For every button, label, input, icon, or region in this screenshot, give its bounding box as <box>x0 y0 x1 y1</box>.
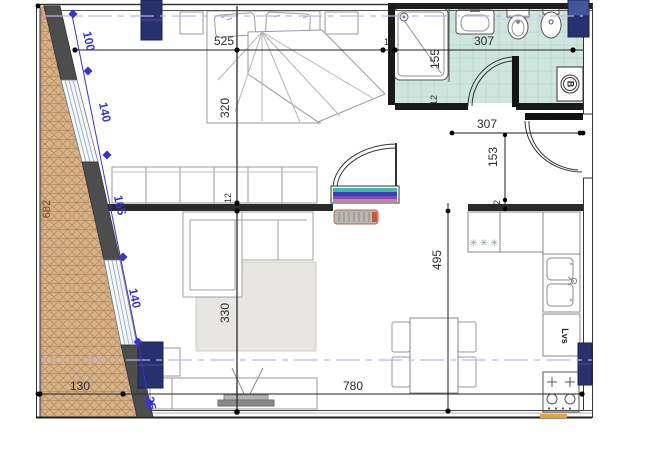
wardrobe <box>112 167 317 203</box>
sofa-chaise <box>183 212 242 297</box>
dim-living-depth: 330 <box>218 303 232 323</box>
chair <box>392 357 410 387</box>
boiler: B <box>557 67 583 101</box>
dining-table <box>410 318 458 393</box>
dim-bottom-main: 780 <box>343 379 363 393</box>
bathroom-top-wall <box>388 3 593 9</box>
dim-top-wall: 12 <box>384 37 394 47</box>
accent-strip <box>540 414 567 418</box>
dim-top-bedroom: 525 <box>214 34 234 48</box>
kitchen-counter-right <box>543 212 580 254</box>
chair <box>458 322 476 352</box>
entry-door-swing <box>525 121 582 172</box>
bedroom-bathroom-wall <box>388 6 395 105</box>
tv-screen <box>224 395 268 400</box>
cooktop <box>543 372 579 412</box>
bedroom-door-swing <box>333 144 396 187</box>
dim-shower-width: 155 <box>428 49 442 69</box>
dim-bedroom-depth: 320 <box>218 98 232 118</box>
radiator-valve <box>372 212 377 222</box>
dim-total-height: 682 <box>41 200 53 218</box>
chair <box>392 322 410 352</box>
dim-bottom-left: 130 <box>70 379 90 393</box>
chair <box>458 357 476 387</box>
dim-facade-100: 100 <box>80 30 98 53</box>
sink-bowl-top <box>547 258 573 280</box>
dim-living-wall: 12 <box>223 193 233 203</box>
boiler-label: B <box>566 81 576 88</box>
column-top-right <box>568 16 589 37</box>
entry-door-leaf <box>525 113 583 120</box>
floor-plan-canvas: B <box>0 0 670 450</box>
dim-hall-wall: 12 <box>492 200 502 210</box>
dim-facade-140a: 140 <box>96 101 114 124</box>
dining-set <box>392 318 476 393</box>
tv-stand <box>218 400 274 406</box>
dim-hall-width: 307 <box>477 117 497 131</box>
sink-bowl-bottom <box>547 284 573 306</box>
washbasin-bowl <box>461 15 489 31</box>
tv-unit <box>140 348 317 409</box>
dim-top-bathroom: 307 <box>474 34 494 48</box>
dim-kitchen-run: 495 <box>430 250 444 270</box>
bedroom-furniture <box>180 11 385 123</box>
bedroom-door-leaf <box>331 186 399 203</box>
dim-shower-wall: 12 <box>429 95 439 105</box>
floor-plan-svg: B <box>0 0 670 450</box>
dishwasher-label: Lvs <box>560 328 570 344</box>
column-top-right-cap <box>568 0 589 16</box>
dim-facade-165: 165 <box>111 194 129 217</box>
radiator <box>334 210 378 224</box>
bathroom-door-leaf <box>512 56 519 107</box>
hob-marks: ✳✳✳ <box>469 238 500 249</box>
dim-hall-depth: 153 <box>486 147 500 167</box>
